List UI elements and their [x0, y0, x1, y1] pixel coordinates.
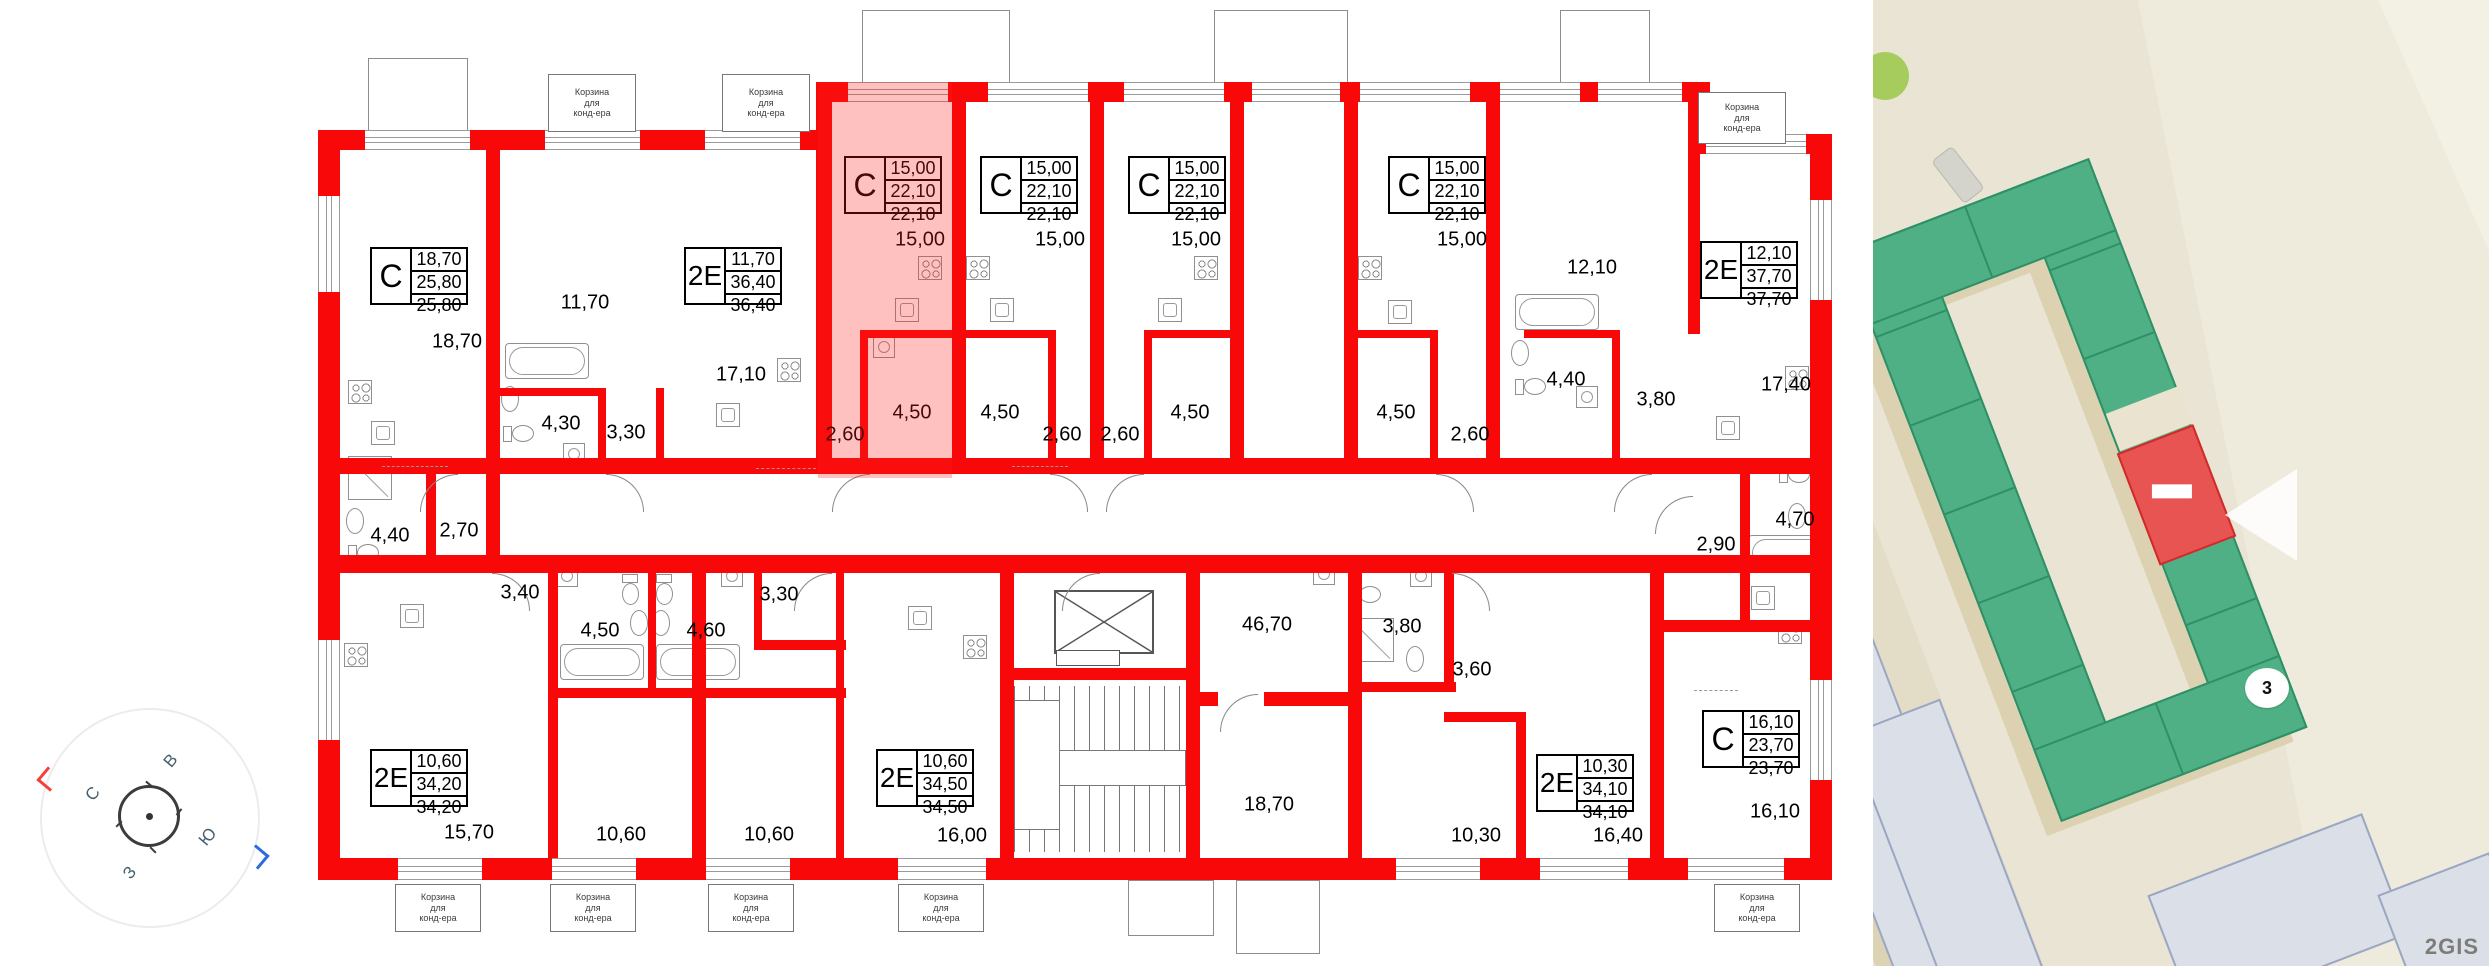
wall — [556, 688, 846, 698]
ac-basket-box: Корзина для конд-ера — [1698, 92, 1786, 144]
wall — [494, 388, 606, 396]
door-arc — [1220, 694, 1258, 732]
apartment-area-value: 10,60 — [412, 751, 466, 772]
ac-basket-box: Корзина для конд-ера — [898, 884, 984, 932]
window — [898, 858, 986, 880]
window — [705, 130, 800, 150]
room-area-label: 3,30 — [760, 584, 799, 607]
wall — [1486, 102, 1500, 458]
balcony-outline — [1128, 880, 1214, 936]
room-area-label: 2,70 — [440, 520, 479, 543]
wall — [1444, 712, 1522, 722]
apartment-type-label: 2Е — [372, 751, 412, 805]
apartment-area-value: 11,70 — [726, 249, 780, 270]
wall — [1090, 102, 1104, 458]
apartment-type-label: С — [372, 249, 412, 303]
apartment-areas: 10,6034,5034,50 — [918, 751, 972, 805]
apartment-area-value: 22,10 — [1430, 202, 1484, 225]
apartment-area-value: 10,30 — [1578, 756, 1632, 777]
apartment-info-box[interactable]: С15,0022,1022,10 — [980, 156, 1078, 214]
apartment-area-value: 23,70 — [1744, 756, 1798, 779]
wall — [1516, 712, 1526, 860]
room-area-label: 12,10 — [1567, 257, 1617, 280]
sinkk-icon — [990, 298, 1014, 322]
sinkk-icon — [1158, 298, 1182, 322]
room-area-label: 4,70 — [1776, 509, 1815, 532]
tub-icon — [560, 644, 644, 680]
apartment-area-value: 16,10 — [1744, 712, 1798, 733]
apartment-area-value: 22,10 — [1170, 202, 1224, 225]
wall — [1354, 330, 1438, 338]
apartment-area-value: 10,60 — [918, 751, 972, 772]
apartment-info-box[interactable]: 2Е12,1037,7037,70 — [1700, 241, 1798, 299]
room-area-label: 10,60 — [596, 824, 646, 847]
room-area-label: 3,30 — [607, 422, 646, 445]
apartment-type-label: 2Е — [1538, 756, 1578, 810]
window — [1252, 82, 1340, 102]
apartment-area-value: 37,70 — [1742, 264, 1796, 287]
room-area-label: 46,70 — [1242, 614, 1292, 637]
wall — [756, 640, 846, 650]
room-area-label: 4,40 — [371, 525, 410, 548]
map-provider-watermark: 2GIS — [2425, 934, 2479, 960]
wall — [486, 474, 500, 555]
window — [1396, 858, 1480, 880]
apartment-areas: 12,1037,7037,70 — [1742, 243, 1796, 297]
selected-apartment-highlight[interactable] — [818, 82, 952, 478]
door-arc — [1614, 474, 1652, 512]
ac-basket-box: Корзина для конд-ера — [1714, 884, 1800, 932]
toilet-icon — [1515, 378, 1545, 394]
apartment-area-value: 34,50 — [918, 772, 972, 795]
wall — [1650, 555, 1664, 860]
room-area-label: 10,30 — [1451, 825, 1501, 848]
room-area-label: 15,00 — [1035, 229, 1085, 252]
room-area-label: 4,50 — [581, 620, 620, 643]
window — [398, 858, 482, 880]
room-area-label: 3,80 — [1383, 616, 1422, 639]
apartment-areas: 15,0022,1022,10 — [1430, 158, 1484, 212]
sinkk-icon — [371, 421, 395, 445]
stove-icon — [1358, 256, 1382, 280]
apartment-type-label: 2Е — [686, 249, 726, 303]
room-area-label: 3,60 — [1453, 659, 1492, 682]
apartment-area-value: 25,80 — [412, 270, 466, 293]
wall — [964, 330, 1056, 338]
room-area-label: 4,50 — [981, 402, 1020, 425]
room-area-label: 3,80 — [1637, 389, 1676, 412]
elevator-door-sill — [1056, 650, 1120, 666]
room-area-label: 16,00 — [937, 825, 987, 848]
window — [1360, 82, 1470, 102]
stove-icon — [348, 380, 372, 404]
wall — [1348, 682, 1456, 692]
basin-icon — [630, 610, 648, 636]
apartment-area-value: 34,10 — [1578, 800, 1632, 823]
wall — [1688, 154, 1700, 334]
door-arc — [1062, 573, 1100, 611]
stove-icon — [966, 256, 990, 280]
apartment-areas: 11,7036,4036,40 — [726, 249, 780, 303]
wall — [1348, 555, 1362, 860]
wall — [1740, 474, 1750, 624]
window — [318, 196, 340, 292]
apartment-areas: 15,0022,1022,10 — [1022, 158, 1076, 212]
wall — [1000, 668, 1200, 680]
room-area-label: 4,60 — [687, 620, 726, 643]
wall — [1524, 330, 1612, 338]
dimension-dash-line — [756, 468, 816, 469]
apartment-area-value: 15,00 — [1430, 158, 1484, 179]
staircase — [1014, 686, 1186, 852]
window — [706, 858, 790, 880]
apartment-areas: 10,3034,1034,10 — [1578, 756, 1632, 810]
apartment-area-value: 15,00 — [1022, 158, 1076, 179]
room-area-label: 10,60 — [744, 824, 794, 847]
wall — [1264, 692, 1348, 706]
apartment-info-box[interactable]: 2Е10,6034,5034,50 — [876, 749, 974, 807]
basin-icon — [1511, 340, 1529, 366]
apartment-areas: 15,0022,1022,10 — [1170, 158, 1224, 212]
room-area-label: 17,40 — [1761, 374, 1811, 397]
apartment-area-value: 34,20 — [412, 795, 466, 818]
balcony-outline — [1236, 880, 1320, 954]
stove-icon — [1194, 256, 1218, 280]
view-direction-cone — [2225, 469, 2297, 561]
window — [1598, 82, 1682, 102]
wall — [1650, 620, 1822, 632]
balcony-outline — [862, 10, 1010, 84]
apartment-info-box[interactable]: С15,0022,1022,10 — [1388, 156, 1486, 214]
wall — [1230, 102, 1244, 458]
apartment-area-value: 12,10 — [1742, 243, 1796, 264]
wall — [1000, 565, 1014, 858]
door-arc — [1106, 474, 1144, 512]
apartment-area-value: 36,40 — [726, 270, 780, 293]
wall — [1344, 102, 1358, 458]
wall — [1430, 338, 1438, 458]
apartment-areas: 18,7025,8025,80 — [412, 249, 466, 303]
apartment-info-box[interactable]: 2Е10,6034,2034,20 — [370, 749, 468, 807]
wall — [648, 573, 656, 698]
apartment-area-value: 25,80 — [412, 293, 466, 316]
apartment-info-box[interactable]: С15,0022,1022,10 — [1128, 156, 1226, 214]
room-area-label: 18,70 — [1244, 794, 1294, 817]
apartment-type-label: С — [1390, 158, 1430, 212]
window — [365, 130, 470, 150]
sinkk-icon — [1388, 300, 1412, 324]
sinkk-icon — [1716, 416, 1740, 440]
door-arc — [1436, 474, 1474, 512]
location-minimap[interactable]: 3 2GIS — [1873, 0, 2489, 966]
stove-icon — [344, 643, 368, 667]
room-area-label: 2,60 — [1451, 424, 1490, 447]
wall — [1200, 692, 1218, 706]
stair-landing — [1014, 700, 1060, 830]
apartment-area-value: 22,10 — [1430, 179, 1484, 202]
room-area-label: 2,60 — [1043, 424, 1082, 447]
wall — [548, 573, 558, 860]
apartment-area-value: 22,10 — [1170, 179, 1224, 202]
room-area-label: 4,40 — [1547, 369, 1586, 392]
map-tree — [1873, 52, 1909, 100]
map-neighbor-building — [2147, 813, 2408, 966]
apartment-info-box[interactable]: 2Е10,3034,1034,10 — [1536, 754, 1634, 812]
toilet-icon — [657, 574, 673, 604]
map-small-structure — [1931, 146, 1985, 205]
ac-basket-box: Корзина для конд-ера — [548, 74, 636, 132]
apartment-info-box[interactable]: С16,1023,7023,70 — [1702, 710, 1800, 768]
compass-rose: С В Ю З — [40, 708, 260, 928]
compass-center-dot — [146, 813, 153, 820]
toilet-icon — [503, 425, 533, 441]
wall — [692, 565, 706, 860]
window — [1810, 200, 1832, 300]
apartment-areas: 10,6034,2034,20 — [412, 751, 466, 805]
balcony-outline — [368, 58, 468, 132]
wall — [1144, 338, 1152, 458]
tub-icon — [505, 343, 589, 379]
selected-floor-dash — [2152, 484, 2192, 498]
sinkk-icon — [400, 604, 424, 628]
apartment-area-value: 36,40 — [726, 293, 780, 316]
apartment-info-box[interactable]: С18,7025,8025,80 — [370, 247, 468, 305]
basin-icon — [346, 508, 364, 534]
wall — [656, 388, 664, 458]
window — [1500, 82, 1580, 102]
apartment-type-label: С — [1704, 712, 1744, 766]
door-arc — [832, 474, 870, 512]
door-arc — [794, 573, 832, 611]
window — [545, 130, 640, 150]
ac-basket-box: Корзина для конд-ера — [395, 884, 481, 932]
stove-icon — [777, 358, 801, 382]
door-arc — [606, 474, 644, 512]
room-area-label: 2,90 — [1697, 534, 1736, 557]
apartment-area-value: 18,70 — [412, 249, 466, 270]
apartment-area-value: 22,10 — [1022, 179, 1076, 202]
room-area-label: 15,70 — [444, 822, 494, 845]
apartment-type-label: 2Е — [878, 751, 918, 805]
wall — [1186, 565, 1200, 858]
room-area-label: 17,10 — [716, 364, 766, 387]
door-arc — [1655, 496, 1693, 534]
apartment-type-label: С — [1130, 158, 1170, 212]
wall — [836, 573, 844, 860]
window — [1540, 858, 1628, 880]
apartment-area-value: 34,10 — [1578, 777, 1632, 800]
window — [988, 82, 1088, 102]
window — [1688, 858, 1784, 880]
room-area-label: 16,10 — [1750, 801, 1800, 824]
door-arc — [1050, 474, 1088, 512]
stove-icon — [963, 635, 987, 659]
apartment-area-value: 15,00 — [1170, 158, 1224, 179]
room-area-label: 18,70 — [432, 331, 482, 354]
apartment-area-value: 37,70 — [1742, 287, 1796, 310]
window — [1810, 680, 1832, 780]
apartment-info-box[interactable]: 2Е11,7036,4036,40 — [684, 247, 782, 305]
room-area-label: 15,00 — [1171, 229, 1221, 252]
room-area-label: 15,00 — [1437, 229, 1487, 252]
room-area-label: 3,40 — [501, 582, 540, 605]
room-area-label: 4,30 — [542, 413, 581, 436]
apartment-area-value: 22,10 — [1022, 202, 1076, 225]
ac-basket-box: Корзина для конд-ера — [722, 74, 810, 132]
apartment-area-value: 34,20 — [412, 772, 466, 795]
building-number-badge[interactable]: 3 — [2245, 668, 2289, 708]
window — [1124, 82, 1224, 102]
wall — [1612, 330, 1620, 458]
window — [552, 858, 636, 880]
wall — [598, 388, 606, 458]
sinkk-icon — [908, 606, 932, 630]
wall — [318, 555, 1812, 573]
door-arc — [1452, 573, 1490, 611]
screenshot-stage: Корзина для конд-ераКорзина для конд-ера… — [0, 0, 2489, 966]
room-area-label: 2,60 — [1101, 424, 1140, 447]
apartment-area-value: 34,50 — [918, 795, 972, 818]
dimension-dash-line — [1694, 690, 1738, 691]
ac-basket-box: Корзина для конд-ера — [550, 884, 636, 932]
wall — [1144, 330, 1230, 338]
dimension-dash-line — [1012, 466, 1068, 467]
apartment-type-label: С — [982, 158, 1022, 212]
sinkk-icon — [716, 403, 740, 427]
dimension-dash-line — [382, 466, 448, 467]
room-area-label: 4,50 — [1377, 402, 1416, 425]
room-area-label: 4,50 — [1171, 402, 1210, 425]
apartment-area-value: 23,70 — [1744, 733, 1798, 756]
window — [318, 640, 340, 740]
balcony-outline — [1214, 10, 1348, 84]
room-area-label: 11,70 — [561, 292, 610, 315]
ac-basket-box: Корзина для конд-ера — [708, 884, 794, 932]
balcony-outline — [1560, 10, 1650, 84]
toilet-icon — [623, 574, 639, 604]
basin-icon — [1406, 646, 1424, 672]
apartment-areas: 16,1023,7023,70 — [1744, 712, 1798, 766]
wall — [486, 150, 500, 458]
apartment-type-label: 2Е — [1702, 243, 1742, 297]
room-area-label: 16,40 — [1593, 825, 1643, 848]
sinkk-icon — [1751, 586, 1775, 610]
tub-icon — [1515, 294, 1599, 330]
wall — [952, 102, 966, 458]
